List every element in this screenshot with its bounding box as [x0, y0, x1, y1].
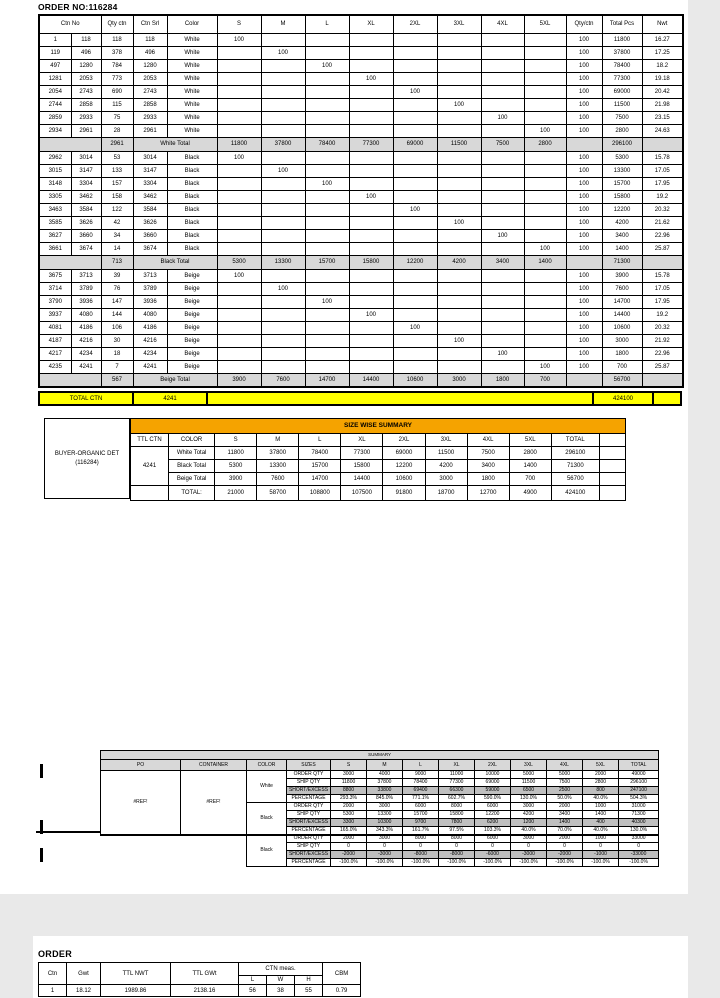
cell	[393, 177, 437, 190]
cell: 39	[101, 269, 133, 282]
cell: 10000	[475, 771, 511, 779]
cell: Black	[167, 229, 217, 242]
cell: Black	[167, 242, 217, 255]
row-label: White Total	[169, 447, 215, 460]
cell: 37800	[367, 779, 403, 787]
cell	[261, 111, 305, 124]
cell	[349, 360, 393, 373]
cell: 3789	[71, 282, 101, 295]
cell: 3000	[437, 373, 481, 387]
cell: 3584	[71, 203, 101, 216]
cell: 1400	[547, 819, 583, 827]
cell: 77300	[349, 137, 393, 151]
cell: 2961	[101, 137, 133, 151]
cell: -8000	[439, 851, 475, 859]
cell	[524, 308, 566, 321]
cell	[393, 308, 437, 321]
cell: 100	[305, 59, 349, 72]
cell: 100	[217, 269, 261, 282]
cell: 100	[349, 72, 393, 85]
col-header: 3XL	[511, 760, 547, 771]
cell	[261, 190, 305, 203]
cell: 1400	[509, 460, 551, 473]
cell: 3674	[133, 242, 167, 255]
cell: 7600	[257, 473, 299, 486]
total-pcs-value: 424100	[594, 393, 654, 404]
col-header: Nwt	[642, 15, 683, 33]
cell	[437, 59, 481, 72]
table-row: #REF!#REF!WhiteORDER QTY3000400090001100…	[101, 771, 659, 779]
cell	[437, 111, 481, 124]
cell: 100	[566, 242, 602, 255]
col-header: 2XL	[475, 760, 511, 771]
cell: 100	[566, 190, 602, 203]
cell	[393, 216, 437, 229]
cell: 4186	[133, 321, 167, 334]
color-label: Black	[247, 835, 287, 867]
p2-header-row-1: CtnGwtTTL NWTTTL GWtCTN meas.CBM	[39, 963, 361, 976]
cell: 2000	[331, 835, 367, 843]
col-header: TTL GWt	[171, 963, 239, 985]
cell: 14400	[349, 373, 393, 387]
cell: 100	[437, 216, 481, 229]
cell	[261, 269, 305, 282]
cell	[642, 137, 683, 151]
cell: 5300	[602, 151, 642, 164]
cell: 6000	[403, 803, 439, 811]
cell	[524, 98, 566, 111]
cell: 33800	[367, 787, 403, 795]
cell	[349, 98, 393, 111]
cell: 3462	[71, 190, 101, 203]
cell: 165.0%	[331, 827, 367, 835]
order-section-title: ORDER	[38, 949, 72, 959]
col-header: XL	[349, 15, 393, 33]
cell: 23.15	[642, 111, 683, 124]
col-header: COLOR	[247, 760, 287, 771]
row-label: SHORT/EXCESS	[287, 819, 331, 827]
cell: 78400	[305, 137, 349, 151]
cell: 2053	[71, 72, 101, 85]
color-label: White	[247, 771, 287, 803]
cell	[217, 124, 261, 137]
cell	[481, 295, 524, 308]
cell: 50.0%	[547, 795, 583, 803]
cell	[599, 473, 625, 486]
cell: 100	[305, 177, 349, 190]
cell	[437, 164, 481, 177]
cell: 4241	[71, 360, 101, 373]
cell: 11500	[602, 98, 642, 111]
col-header: H	[295, 976, 323, 985]
cell: 17.95	[642, 295, 683, 308]
cell: 78400	[403, 779, 439, 787]
cell	[393, 124, 437, 137]
col-header: L	[239, 976, 267, 985]
cell: 24.63	[642, 124, 683, 137]
cell: 78400	[602, 59, 642, 72]
cell: 3714	[39, 282, 71, 295]
cell: 784	[101, 59, 133, 72]
cell: 3000	[331, 771, 367, 779]
col-header: Ctn	[39, 963, 67, 985]
col-header: Ctn No	[39, 15, 101, 33]
cell: 1	[39, 985, 67, 997]
cell	[261, 177, 305, 190]
cell: 78400	[299, 447, 341, 460]
cell	[393, 242, 437, 255]
cell: 100	[566, 347, 602, 360]
cell: 2933	[71, 111, 101, 124]
cell: 15800	[602, 190, 642, 203]
cell: 56700	[551, 473, 599, 486]
cell: White	[167, 111, 217, 124]
cell: 33000	[619, 835, 659, 843]
cell: 100	[566, 216, 602, 229]
cell	[524, 203, 566, 216]
cell	[393, 334, 437, 347]
cell	[481, 177, 524, 190]
cell	[261, 124, 305, 137]
cell: 21.92	[642, 334, 683, 347]
summary-header-row: POCONTAINERCOLORSIZESSMLXL2XL3XL4XL5XLTO…	[101, 760, 659, 771]
cell: 496	[133, 46, 167, 59]
buyer-cell: BUYER-ORGANIC DET (116284)	[44, 418, 130, 499]
page-2: ORDER CtnGwtTTL NWTTTL GWtCTN meas.CBMLW…	[33, 936, 688, 998]
ttl-ctn-value: 4241	[131, 447, 169, 486]
cell: Beige	[167, 282, 217, 295]
sws-header-row: TTL CTNCOLORSMLXL2XL3XL4XL5XLTOTAL	[131, 434, 626, 447]
cell	[524, 33, 566, 46]
summary-table-body: SUMMARYPOCONTAINERCOLORSIZESSMLXL2XL3XL4…	[101, 751, 659, 867]
cell	[437, 72, 481, 85]
cell	[437, 282, 481, 295]
cell: 13300	[602, 164, 642, 177]
cell: 8000	[439, 835, 475, 843]
cell	[349, 321, 393, 334]
cell: -33000	[619, 851, 659, 859]
cell	[524, 269, 566, 282]
cell: 118	[71, 33, 101, 46]
cell: 3675	[39, 269, 71, 282]
cell: 108800	[299, 486, 341, 501]
cell	[393, 151, 437, 164]
sws-title: SIZE WISE SUMMARY	[131, 419, 626, 434]
cell: White	[167, 72, 217, 85]
cell: 17.05	[642, 164, 683, 177]
cell	[261, 72, 305, 85]
cell: Beige	[167, 295, 217, 308]
cell: 100	[349, 190, 393, 203]
table-row: 393740801444080Beige1001001440019.2	[39, 308, 683, 321]
cell	[524, 85, 566, 98]
cell	[349, 295, 393, 308]
cell: 13300	[261, 255, 305, 269]
col-header: TOTAL	[619, 760, 659, 771]
cell	[261, 347, 305, 360]
cell: 14700	[305, 373, 349, 387]
cell: 3015	[39, 164, 71, 177]
cell: 11800	[331, 779, 367, 787]
cell: 4234	[133, 347, 167, 360]
cell	[217, 321, 261, 334]
cell	[305, 72, 349, 85]
cell	[481, 321, 524, 334]
cell: 0	[547, 843, 583, 851]
cell: 2000	[547, 835, 583, 843]
cell: 21.62	[642, 216, 683, 229]
cell: 13300	[367, 811, 403, 819]
cell	[393, 295, 437, 308]
carton-measure-body: CtnGwtTTL NWTTTL GWtCTN meas.CBMLWH118.1…	[39, 963, 361, 997]
cell	[524, 334, 566, 347]
cell: 16.27	[642, 33, 683, 46]
cell	[349, 242, 393, 255]
cell	[393, 111, 437, 124]
cell	[437, 85, 481, 98]
cell: 7500	[547, 779, 583, 787]
cell	[305, 151, 349, 164]
cell: 11800	[602, 33, 642, 46]
cell	[181, 835, 247, 867]
summary-title: SUMMARY	[101, 751, 659, 760]
cell	[524, 282, 566, 295]
col-header: XL	[439, 760, 475, 771]
cell: 0.79	[323, 985, 361, 997]
cell: -100.0%	[583, 859, 619, 867]
cell: 100	[566, 111, 602, 124]
col-header: M	[367, 760, 403, 771]
cell	[349, 164, 393, 177]
cell: 100	[566, 360, 602, 373]
cell: 100	[566, 308, 602, 321]
col-header: S	[217, 15, 261, 33]
col-header: 4XL	[467, 434, 509, 447]
cell: 5000	[547, 771, 583, 779]
cell	[305, 334, 349, 347]
cell	[524, 46, 566, 59]
cell: 118	[133, 33, 167, 46]
cell	[217, 334, 261, 347]
cell: 100	[566, 282, 602, 295]
cell: 13300	[257, 460, 299, 473]
cell: 17.25	[642, 46, 683, 59]
cell	[524, 164, 566, 177]
cell: 4080	[71, 308, 101, 321]
cell: White	[167, 124, 217, 137]
cell: 100	[566, 321, 602, 334]
margin-tick-1	[40, 764, 43, 778]
table-row: 379039361473936Beige1001001470017.95	[39, 295, 683, 308]
cell: White	[167, 98, 217, 111]
cell: 700	[602, 360, 642, 373]
col-header: COLOR	[169, 434, 215, 447]
col-header: CBM	[323, 963, 361, 985]
cell	[481, 164, 524, 177]
cell	[393, 269, 437, 282]
row-label: PERCENTAGE	[287, 827, 331, 835]
cell: -100.0%	[619, 859, 659, 867]
cell	[39, 255, 101, 269]
cell: 133	[101, 164, 133, 177]
cell: 296100	[619, 779, 659, 787]
cell: 100	[437, 98, 481, 111]
cell: 4235	[39, 360, 71, 373]
cell: 69000	[475, 779, 511, 787]
cell	[217, 360, 261, 373]
cell: Black	[167, 151, 217, 164]
color-label: Black	[247, 803, 287, 835]
cell: 2961	[71, 124, 101, 137]
page-1: ORDER NO:116284 Ctn NoQty ctnCtn SrlColo…	[0, 0, 688, 894]
cell: 3400	[547, 811, 583, 819]
cell: 10600	[602, 321, 642, 334]
cell: 3674	[71, 242, 101, 255]
cell: 3014	[71, 151, 101, 164]
table-row: 29342961282961White100100280024.63	[39, 124, 683, 137]
cell: 3626	[71, 216, 101, 229]
cell: 296100	[602, 137, 642, 151]
cell: 1400	[524, 255, 566, 269]
cell: 34	[101, 229, 133, 242]
cell	[349, 269, 393, 282]
cell: 2961	[133, 124, 167, 137]
cell	[261, 85, 305, 98]
cell	[349, 216, 393, 229]
cell: 18	[101, 347, 133, 360]
cell	[599, 447, 625, 460]
cell: 100	[566, 295, 602, 308]
cell: 12200	[475, 811, 511, 819]
cell: 2962	[39, 151, 71, 164]
table-row: Black Total53001330015700158001220042003…	[131, 460, 626, 473]
cell: 700	[509, 473, 551, 486]
cell: 590.0%	[475, 795, 511, 803]
group-divider-line	[36, 831, 100, 833]
col-header: 2XL	[383, 434, 425, 447]
cell	[524, 151, 566, 164]
cell: 100	[566, 33, 602, 46]
cell: 53	[101, 151, 133, 164]
cell	[261, 151, 305, 164]
row-label: SHORT/EXCESS	[287, 787, 331, 795]
cell: 100	[217, 151, 261, 164]
cell: 100	[566, 203, 602, 216]
cell: Black	[167, 203, 217, 216]
cell: Black	[167, 164, 217, 177]
col-header: L	[403, 760, 439, 771]
cell	[566, 255, 602, 269]
cell	[481, 85, 524, 98]
cell: 3584	[133, 203, 167, 216]
cell: 100	[217, 33, 261, 46]
cell: -100.0%	[403, 859, 439, 867]
section-total-label: Beige Total	[133, 373, 217, 387]
cell: 296100	[551, 447, 599, 460]
cell: 8000	[403, 835, 439, 843]
cell: 77300	[439, 779, 475, 787]
cell: 100	[349, 308, 393, 321]
cell: 700	[524, 373, 566, 387]
cell: 12700	[467, 486, 509, 501]
cell: 71300	[602, 255, 642, 269]
cell: 4900	[509, 486, 551, 501]
cell: 100	[481, 111, 524, 124]
cell: 1200	[511, 819, 547, 827]
cell	[393, 282, 437, 295]
cell: Beige	[167, 334, 217, 347]
section-total-row: 2961White Total1180037800784007730069000…	[39, 137, 683, 151]
cell	[349, 177, 393, 190]
cell: 1281	[39, 72, 71, 85]
cell: 100	[566, 72, 602, 85]
cell	[437, 177, 481, 190]
cell: 118	[101, 33, 133, 46]
cell: 2054	[39, 85, 71, 98]
col-header: W	[267, 976, 295, 985]
cell	[261, 295, 305, 308]
cell: 100	[566, 269, 602, 282]
cell: 2744	[39, 98, 71, 111]
cell: 2500	[547, 787, 583, 795]
col-header: M	[261, 15, 305, 33]
cell	[217, 229, 261, 242]
table-row: 118.121989.862138.165638550.79	[39, 985, 361, 997]
order-no-title: ORDER NO:116284	[38, 2, 118, 12]
cell	[393, 164, 437, 177]
cell	[305, 203, 349, 216]
cell	[217, 177, 261, 190]
cell: 3304	[71, 177, 101, 190]
cell	[261, 59, 305, 72]
cell	[305, 85, 349, 98]
cell: 11800	[217, 137, 261, 151]
cell: 14	[101, 242, 133, 255]
cell: 22.96	[642, 347, 683, 360]
cell: 100	[481, 347, 524, 360]
cell: 2800	[509, 447, 551, 460]
cell	[217, 111, 261, 124]
cell: 424100	[551, 486, 599, 501]
cell: 58700	[257, 486, 299, 501]
cell: 3789	[133, 282, 167, 295]
cell: 0	[403, 843, 439, 851]
cell: 1	[39, 33, 71, 46]
cell	[566, 137, 602, 151]
cell: 15800	[439, 811, 475, 819]
cell: 100	[261, 46, 305, 59]
cell: 2934	[39, 124, 71, 137]
cell: 3660	[133, 229, 167, 242]
cell	[349, 334, 393, 347]
cell: 71300	[551, 460, 599, 473]
cell: 19.2	[642, 190, 683, 203]
cell: 7600	[602, 282, 642, 295]
sws-title-row: SIZE WISE SUMMARY	[131, 419, 626, 434]
cell	[39, 137, 101, 151]
row-label: Black Total	[169, 460, 215, 473]
cell: 10300	[367, 819, 403, 827]
cell	[481, 282, 524, 295]
cell: -8000	[403, 851, 439, 859]
row-label: PERCENTAGE	[287, 795, 331, 803]
cell: -100.0%	[331, 859, 367, 867]
cell	[481, 98, 524, 111]
cell: 49000	[619, 771, 659, 779]
cell	[524, 111, 566, 124]
table-row: 346335841223584Black1001001220020.32	[39, 203, 683, 216]
cell: 1280	[133, 59, 167, 72]
